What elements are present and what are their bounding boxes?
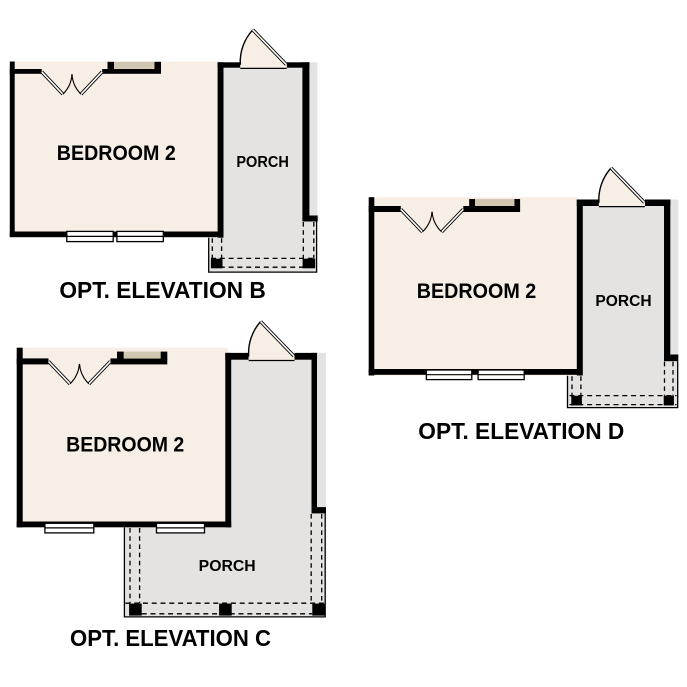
svg-text:OPT. ELEVATION B: OPT. ELEVATION B	[59, 277, 266, 303]
svg-text:OPT. ELEVATION D: OPT. ELEVATION D	[418, 418, 624, 444]
svg-text:PORCH: PORCH	[236, 154, 289, 171]
svg-text:OPT. ELEVATION C: OPT. ELEVATION C	[70, 625, 271, 651]
svg-text:BEDROOM 2: BEDROOM 2	[66, 434, 184, 457]
svg-text:BEDROOM 2: BEDROOM 2	[417, 280, 536, 303]
svg-text:PORCH: PORCH	[199, 558, 256, 575]
svg-text:PORCH: PORCH	[595, 293, 651, 310]
svg-text:BEDROOM 2: BEDROOM 2	[57, 142, 176, 165]
